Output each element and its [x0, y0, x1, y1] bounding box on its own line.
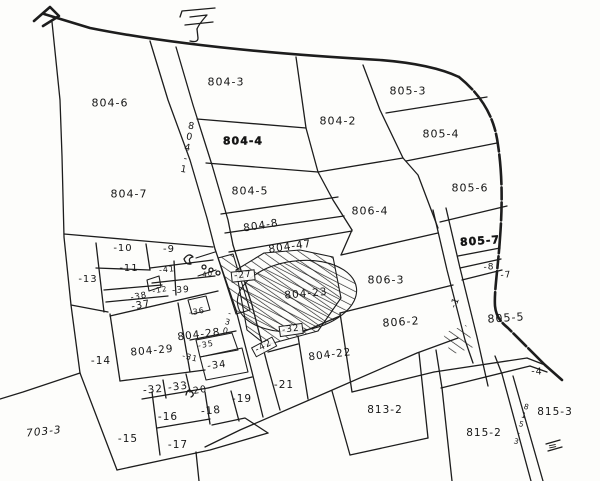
bottom-tick [196, 452, 199, 481]
parcel-label-806-4: 806-4 [352, 206, 389, 217]
parcel-label-804-4: 804-4 [223, 136, 263, 147]
div-806-corner [341, 230, 352, 255]
parcel-label-804-5: 804-5 [232, 186, 269, 197]
div-804-7-bottom [64, 234, 213, 247]
parcel-label-m19: -19 [232, 394, 252, 405]
parcel-label-804-2: 804-2 [320, 116, 357, 127]
div-806-4-left [318, 172, 352, 230]
parcel-label-804-7: 804-7 [111, 189, 148, 200]
parcel-label-m40: -40 [198, 271, 213, 279]
div-14-29 [110, 314, 120, 381]
div-813-2-right [419, 353, 428, 438]
div-805-6-7 [440, 206, 507, 222]
parcel-label-m32: -32 [143, 384, 164, 396]
block-edge-left-lower [80, 373, 117, 470]
div-804-3-right [296, 57, 306, 128]
aza-character-glyph [180, 8, 215, 42]
div-804-3-bottom [197, 119, 306, 128]
parcel-label-m18: -18 [201, 405, 222, 417]
div-804-4-right [306, 128, 318, 172]
div-804-8-top [221, 197, 338, 214]
div-sliver-2 [460, 259, 501, 268]
div-pocket-1 [196, 252, 215, 258]
parcel-label-m15: -15 [118, 434, 138, 445]
parcel-label-805-7: 805-7 [460, 234, 501, 248]
parcel-label-m17: -17 [168, 440, 188, 451]
parcel-label-m8: -8 [484, 264, 495, 273]
div-805-3-4 [386, 97, 487, 113]
parcel-label-m7: -7 [500, 271, 512, 281]
div-805-4-6 [406, 143, 497, 161]
parcel-label-m39: -39 [172, 286, 190, 296]
aza-stroke-hook [190, 29, 198, 42]
div-18-bottom [212, 418, 268, 433]
cadastral-map: 804-6804-3804-4804-2805-3805-4805-6804-7… [0, 0, 600, 481]
div-813-2-bottom [350, 438, 428, 455]
div-sliver-1 [458, 248, 500, 256]
parcel-label-804-3: 804-3 [208, 77, 245, 88]
div-804-4-bottom [206, 163, 318, 172]
boundary-top [44, 14, 459, 77]
parcel-label-815-2: 815-2 [466, 428, 502, 439]
block-edge-bottom [117, 433, 268, 470]
parcel-label-m9: -9 [163, 245, 175, 255]
parcel-label-805-3: 805-3 [390, 86, 427, 97]
hatch-areas [218, 250, 474, 355]
parcel-label-m14: -14 [91, 356, 111, 367]
road-bottom-left [0, 373, 80, 399]
parcel-label-m10: -10 [113, 244, 132, 254]
parcel-label-m21: -21 [274, 380, 294, 391]
parcel-label-804-6: 804-6 [92, 98, 129, 109]
parcel-label-equals-mark: = [547, 440, 559, 453]
div-15-16 [152, 392, 160, 455]
parcel-label-m41: -41 [159, 265, 176, 275]
div-804-2-bottom [318, 158, 403, 172]
parcel-label-m33: -33 [167, 381, 188, 394]
parcel-label-813-2: 813-2 [367, 405, 403, 416]
boundary-right-lower [545, 365, 562, 380]
parcel-label-805-5: 805-5 [487, 311, 525, 325]
div-21-22 [298, 336, 308, 399]
parcel-label-805-4: 805-4 [423, 129, 460, 140]
div-10-9 [146, 244, 150, 270]
left-boundary-line [52, 22, 80, 373]
parcel-label-806-3: 806-3 [368, 275, 405, 286]
parcel-label-m11: -11 [119, 264, 138, 274]
div-junction [436, 350, 442, 388]
parcel-label-m16: -16 [158, 412, 178, 423]
div-row-32-top [120, 370, 205, 381]
bead-3 [216, 271, 220, 275]
div-13-14 [71, 305, 108, 312]
hatch-junction [443, 325, 474, 355]
bead-1 [202, 265, 206, 269]
parcel-label-806-2: 806-2 [382, 315, 420, 329]
parcel-label-815-3: 815-3 [537, 407, 573, 418]
parcel-label-m4: -4 [531, 367, 542, 377]
div-813-2-left [332, 391, 350, 455]
parcel-label-m13: -13 [78, 275, 97, 285]
parcel-label-805-6: 805-6 [452, 183, 489, 194]
strip-815-3-top-connector [495, 356, 502, 374]
div-815-2-left [442, 388, 452, 481]
aza-stroke-upper [190, 15, 207, 29]
div-806-4-3 [341, 233, 438, 255]
